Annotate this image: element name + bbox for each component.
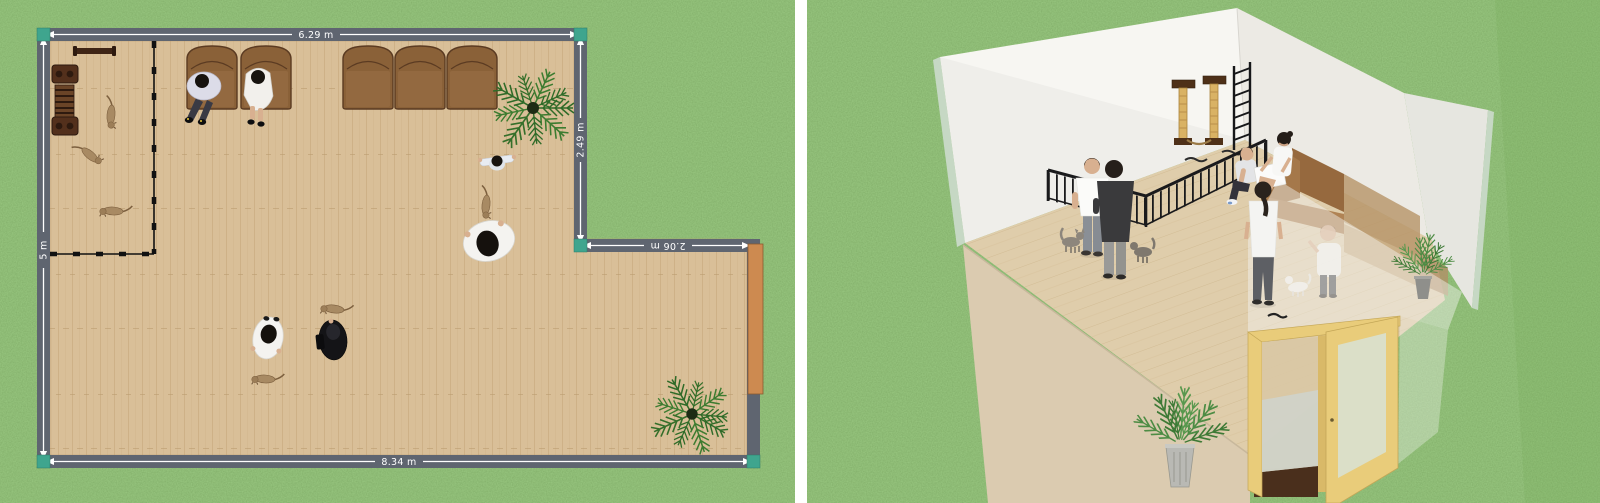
sofa-three-seat-2d[interactable] <box>343 46 497 109</box>
dimension-label-top: 6.29 m <box>298 30 333 41</box>
corner-bottom-right[interactable] <box>747 455 760 468</box>
dimension-label-right: 2.49 m <box>576 122 587 157</box>
view-3d-panel[interactable] <box>807 0 1600 503</box>
dimension-label-bottom: 8.34 m <box>381 457 416 468</box>
dimension-label-step: 2.06 m <box>650 240 685 251</box>
door-2d[interactable] <box>748 244 763 394</box>
dimension-label-left: 5 m <box>39 240 50 259</box>
corner-bottom-left[interactable] <box>37 455 50 468</box>
panel-divider <box>795 0 807 503</box>
corner-top-left[interactable] <box>37 28 50 41</box>
floor-plan-2d-panel[interactable]: 6.29 m 8.34 m 2.49 m 5 m 2.06 m <box>0 0 795 503</box>
corner-top-right[interactable] <box>574 28 587 41</box>
door-handle[interactable] <box>1330 418 1334 422</box>
floor-planner-app: 6.29 m 8.34 m 2.49 m 5 m 2.06 m <box>0 0 1600 503</box>
corner-step[interactable] <box>574 239 587 252</box>
cat-tree-2d[interactable] <box>52 65 78 135</box>
door-3d[interactable] <box>1248 316 1400 503</box>
